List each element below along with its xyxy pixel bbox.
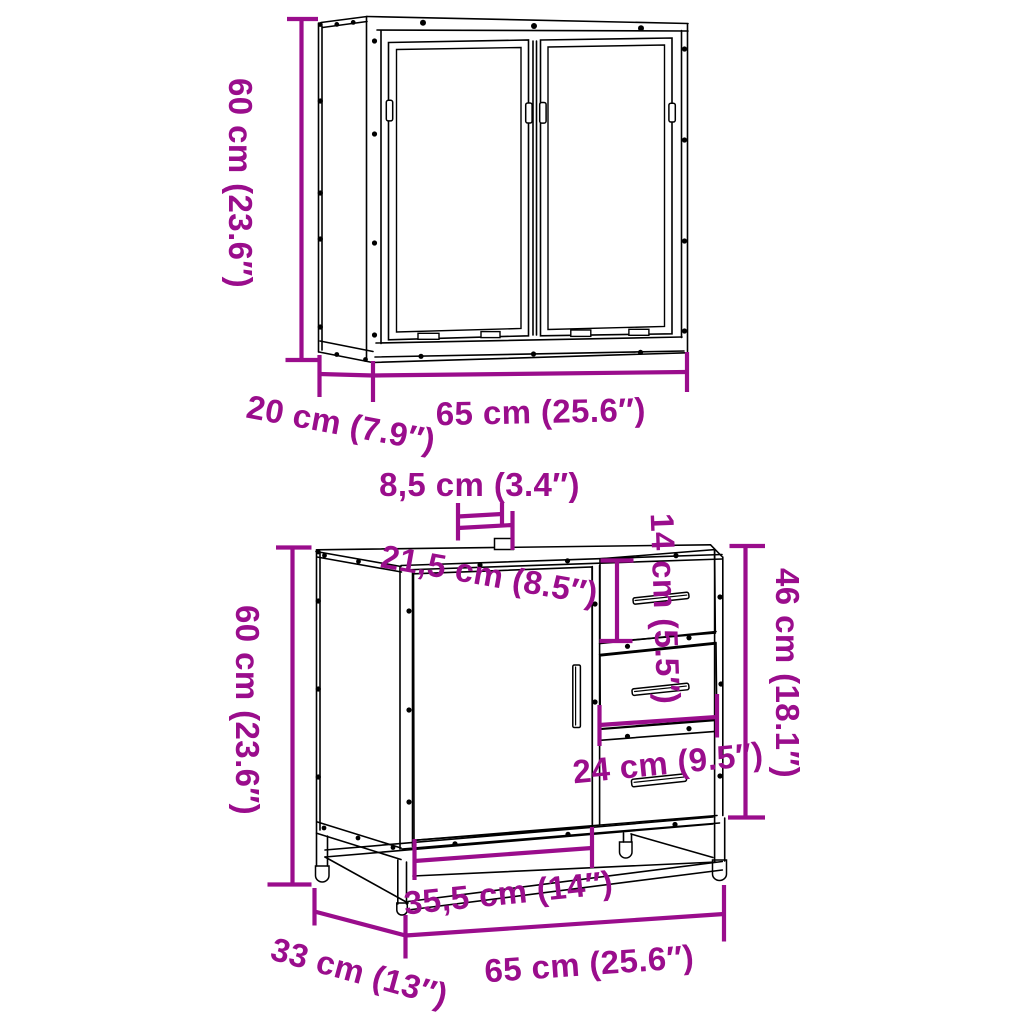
svg-text:65 cm (25.6″): 65 cm (25.6″) <box>435 391 646 432</box>
svg-text:14 cm (5.5″): 14 cm (5.5″) <box>644 512 688 704</box>
svg-text:8,5 cm (3.4″): 8,5 cm (3.4″) <box>379 466 580 503</box>
svg-text:60 cm (23.6″): 60 cm (23.6″) <box>222 78 259 288</box>
svg-text:60 cm (23.6″): 60 cm (23.6″) <box>229 605 266 815</box>
svg-text:46 cm (18.1″): 46 cm (18.1″) <box>769 568 806 778</box>
